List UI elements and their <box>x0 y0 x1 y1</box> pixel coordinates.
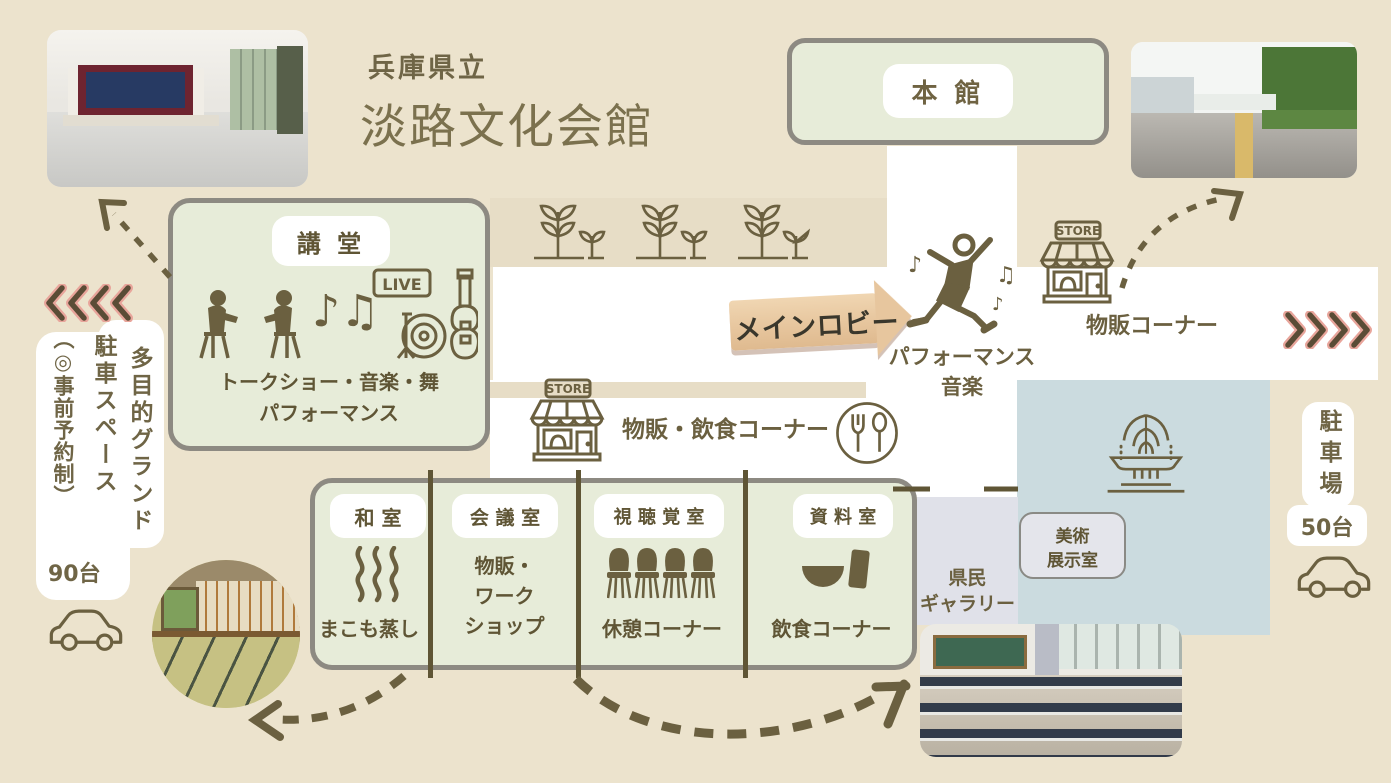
page-title: 淡路文化会館 <box>360 88 654 157</box>
room-shichokaku-text: 視 聴 覚 室 <box>614 503 705 529</box>
chevrons-right-icon <box>1282 311 1372 349</box>
arrowhead <box>1214 191 1240 218</box>
live-sign-text: LIVE <box>382 275 421 294</box>
gallery-label-1: 県民 <box>912 563 1023 590</box>
store-sign-text: STORE <box>1056 224 1100 238</box>
facility-map: 兵庫県立 淡路文化会館 本 館 講 堂 ♪♫ <box>0 0 1391 783</box>
lobby-activity-2: 音楽 <box>872 371 1052 401</box>
room-divider <box>743 470 748 678</box>
dancer-icon: ♪ ♫ ♪ <box>900 232 1012 338</box>
tatami-room-photo <box>152 560 300 708</box>
plant-icon <box>734 200 812 262</box>
room-kaigishitsu-desc-1: 物販・ <box>433 550 576 579</box>
arrowhead <box>255 704 280 737</box>
main-building-text: 本 館 <box>911 73 984 110</box>
lobby-activity-1: パフォーマンス <box>872 341 1052 371</box>
room-shiryoshitsu-desc: 飲食コーナー <box>748 613 915 642</box>
auditorium-desc-1: トークショー・音楽・舞 <box>168 366 490 395</box>
music-notes-icon: ♪♫ <box>312 286 380 337</box>
auditorium-label: 講 堂 <box>272 216 390 266</box>
dancer-note-3: ♪ <box>992 294 1004 315</box>
room-shiryoshitsu-text: 資 料 室 <box>810 503 877 529</box>
auditorium-photo <box>47 30 308 187</box>
auditorium-desc-2: パフォーマンス <box>168 397 490 426</box>
dancer-note-1: ♪ <box>908 253 922 278</box>
room-kaigishitsu-desc-2: ワーク <box>433 580 576 609</box>
parking-right-text: 駐車場 <box>1311 409 1345 502</box>
parking-left-col1: 多目的グランド <box>122 346 156 535</box>
fountain-icon <box>1098 402 1194 498</box>
room-washitsu-label: 和 室 <box>330 494 426 538</box>
tableware-icon <box>800 548 876 606</box>
auditorium-text: 講 堂 <box>297 224 365 259</box>
plant-icon <box>530 200 608 262</box>
car-icon <box>46 600 126 656</box>
room-washitsu-desc: まこも蒸し <box>306 613 432 642</box>
car-icon <box>1294 547 1374 603</box>
room-kaigishitsu-text: 会 議 室 <box>470 503 540 530</box>
store-icon: STORE <box>527 378 607 462</box>
parking-left-col2: 駐車スペース <box>86 334 120 496</box>
parking-right-capacity: 50台 <box>1287 505 1367 546</box>
dashed-arrow <box>114 214 170 277</box>
store-icon: STORE <box>1037 220 1117 304</box>
chevrons-left-icon <box>44 284 134 322</box>
live-stage-icon: LIVE <box>372 266 478 362</box>
art-room-label-2: 展示室 <box>1019 546 1126 571</box>
food-store-corner-label: 物販・飲食コーナー <box>622 410 829 444</box>
promenade-photo <box>1131 42 1357 178</box>
gallery-label-2: ギャラリー <box>907 589 1028 616</box>
plant-icon <box>632 200 710 262</box>
arrowhead <box>102 202 124 228</box>
room-shiryoshitsu-label: 資 料 室 <box>793 494 893 538</box>
parking-right-label: 駐車場 <box>1302 402 1354 508</box>
talk-show-icon <box>196 288 314 362</box>
parking-right-capacity-text: 50台 <box>1301 510 1354 542</box>
dancer-note-2: ♫ <box>996 263 1012 288</box>
title-prefecture: 兵庫県立 <box>368 46 488 85</box>
fork-spoon-icon <box>833 399 901 467</box>
room-shichokaku-label: 視 聴 覚 室 <box>594 494 724 538</box>
room-washitsu-text: 和 室 <box>355 502 402 531</box>
main-building-label: 本 館 <box>883 64 1013 118</box>
parking-left-col3: （◎事前予約制） <box>48 328 78 507</box>
arrowhead <box>876 684 906 724</box>
art-room-label-1: 美術 <box>1019 522 1126 547</box>
dashed-arrow <box>576 679 884 734</box>
steam-icon <box>350 546 406 606</box>
parking-left-capacity: 90台 <box>48 556 101 588</box>
classroom-photo <box>920 624 1182 757</box>
room-shichokaku-desc: 休憩コーナー <box>581 613 743 642</box>
room-kaigishitsu-desc-3: ショップ <box>433 610 576 639</box>
room-kaigishitsu-label: 会 議 室 <box>452 494 558 538</box>
store-corner-label: 物販コーナー <box>1086 308 1218 340</box>
store-sign-text: STORE <box>546 382 590 396</box>
room-divider <box>576 470 581 678</box>
chairs-icon <box>607 546 717 604</box>
